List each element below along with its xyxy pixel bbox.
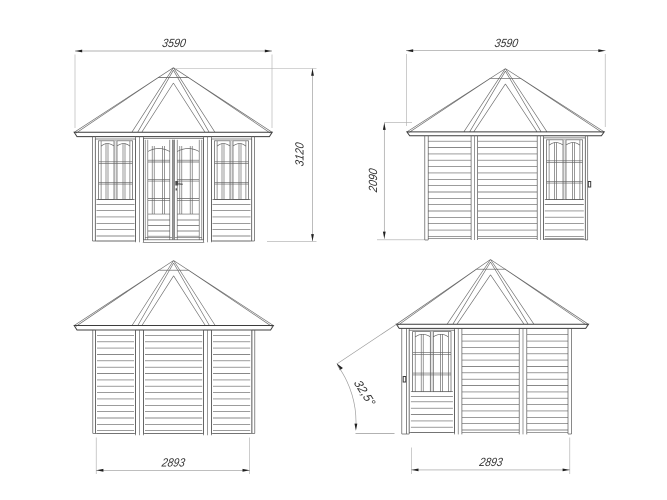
svg-text:3590: 3590 xyxy=(494,36,520,50)
svg-text:3120: 3120 xyxy=(293,141,307,167)
svg-text:2893: 2893 xyxy=(478,455,504,469)
svg-text:2893: 2893 xyxy=(160,455,186,469)
svg-text:2090: 2090 xyxy=(366,167,380,194)
svg-text:3590: 3590 xyxy=(161,36,187,50)
